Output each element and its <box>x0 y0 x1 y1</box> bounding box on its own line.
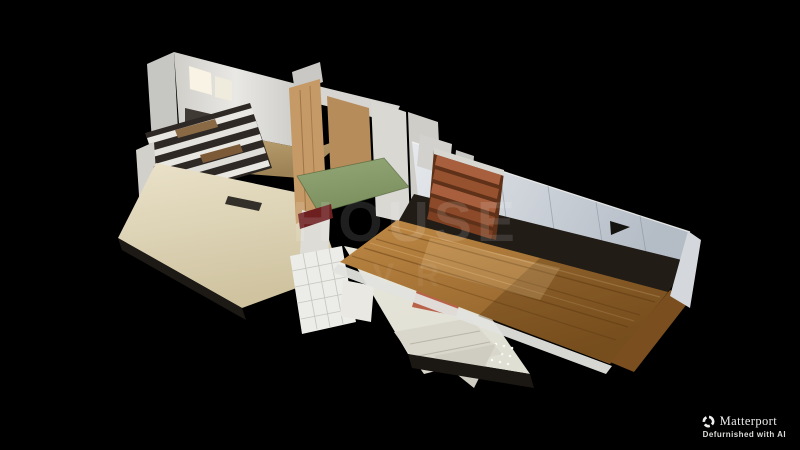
dollhouse-3d-model[interactable] <box>0 0 800 450</box>
viewer-stage[interactable]: HOUSE VR Matterport Defurnished with AI <box>0 0 800 450</box>
matterport-brand-link[interactable]: Matterport <box>702 414 777 429</box>
attribution-badge: Matterport Defurnished with AI <box>702 414 786 439</box>
matterport-logo-icon <box>702 415 715 428</box>
matterport-brand-name: Matterport <box>720 414 777 429</box>
defurnished-tagline: Defurnished with AI <box>703 430 786 439</box>
fallen-door-panel <box>340 280 374 322</box>
